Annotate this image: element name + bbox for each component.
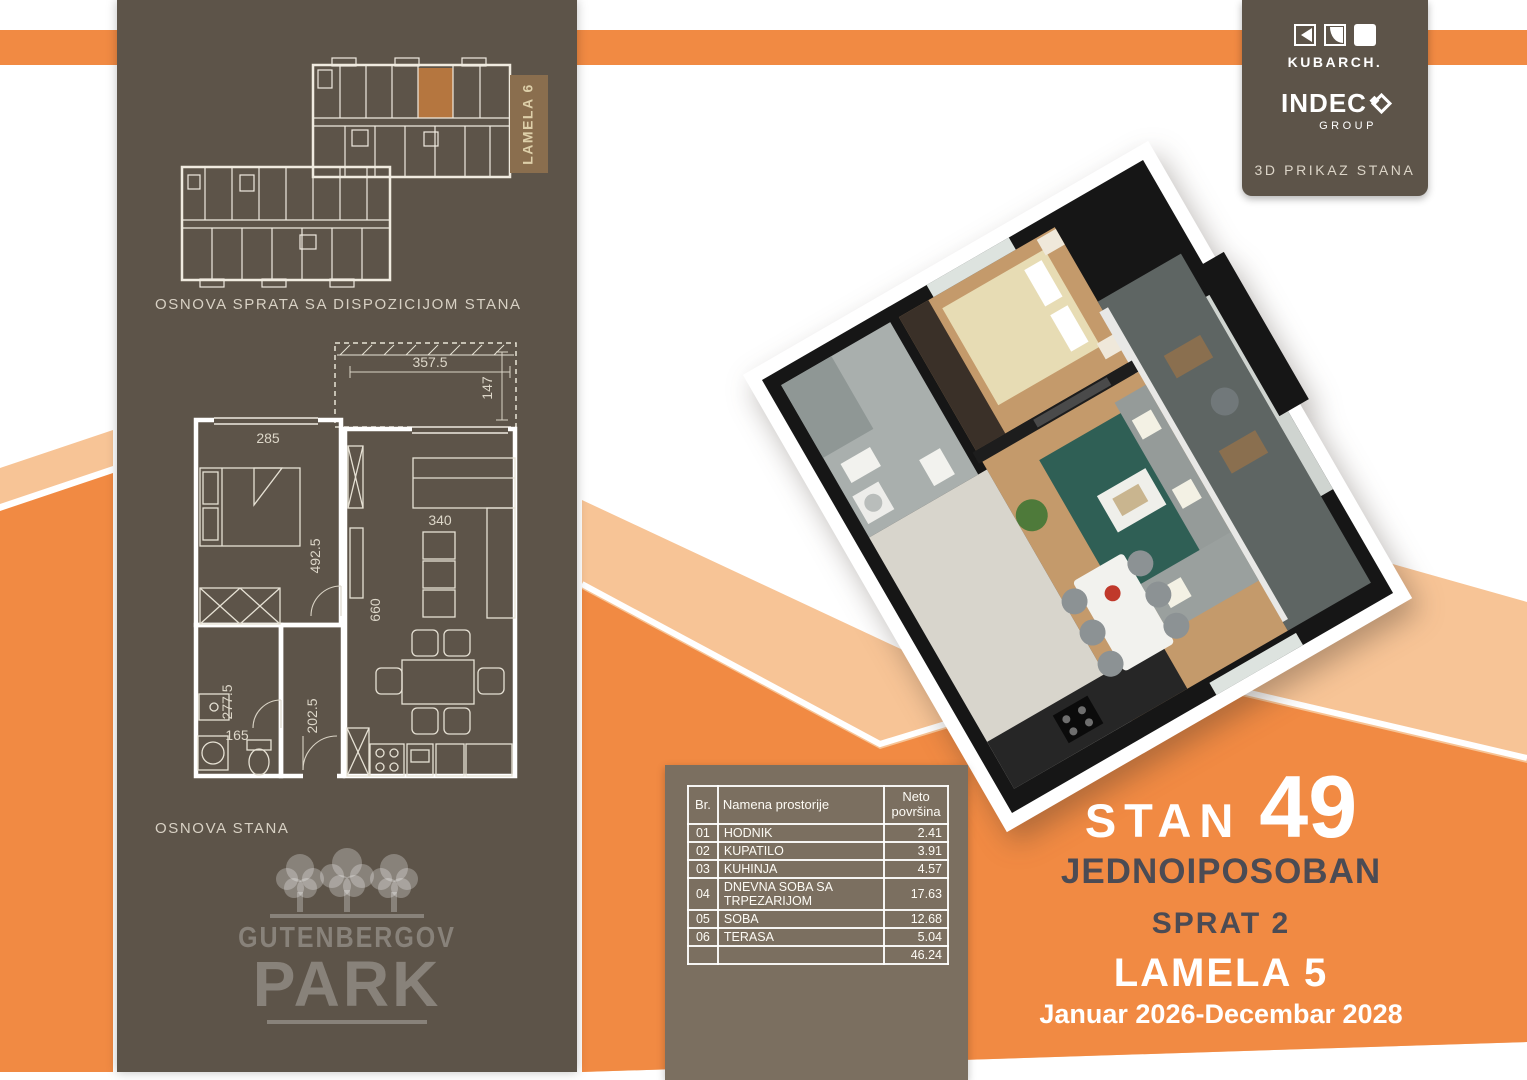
- dim-sofa-width: 340: [428, 512, 452, 528]
- dim-bedroom-width: 285: [256, 430, 280, 446]
- unit-floor-plan: 357.5 147 285 492.5 340 660 277.5 202.5 …: [137, 332, 562, 810]
- stan-label: STAN: [1085, 793, 1241, 848]
- kubarch-label: KUBARCH.: [1288, 54, 1383, 70]
- table-row: 06TERASA5.04: [688, 928, 948, 946]
- trees-icon: [262, 848, 432, 920]
- room-area: 17.63: [884, 878, 948, 910]
- room-number: 05: [688, 910, 718, 928]
- table-row: 01HODNIK2.41: [688, 824, 948, 842]
- kubarch-square-solid-icon: [1354, 24, 1376, 46]
- dim-bath-height: 277.5: [219, 684, 235, 719]
- apartment-type: JEDNOIPOSOBAN: [1005, 852, 1437, 892]
- highlighted-unit: [418, 68, 453, 118]
- table-row: 04DNEVNA SOBA SA TRPEZARIJOM17.63: [688, 878, 948, 910]
- table-total-row: 46.24: [688, 946, 948, 964]
- col-header-br: Br.: [688, 786, 718, 824]
- room-name: KUPATILO: [718, 842, 884, 860]
- room-number: 03: [688, 860, 718, 878]
- dim-bedroom-height: 492.5: [307, 538, 323, 573]
- apartment-floor: SPRAT 2: [1005, 907, 1437, 941]
- logo-underline: [267, 1020, 427, 1024]
- floor-site-plan: LAMELA 6: [145, 50, 567, 290]
- table-row: 03KUHINJA4.57: [688, 860, 948, 878]
- room-number: 02: [688, 842, 718, 860]
- site-plan-title: OSNOVA SPRATA SA DISPOZICIJOM STANA: [155, 296, 522, 313]
- room-area: 3.91: [884, 842, 948, 860]
- kubarch-logo-icon: [1294, 24, 1376, 46]
- room-name: TERASA: [718, 928, 884, 946]
- dim-bath-width: 165: [225, 727, 249, 743]
- room-area: 12.68: [884, 910, 948, 928]
- col-header-area-line2: površina: [889, 805, 943, 820]
- kubarch-square-quarter-icon: [1324, 24, 1346, 46]
- brochure-page: LAMELA 6 OSNOVA SPRATA SA DISPOZICIJOM S…: [0, 0, 1527, 1080]
- dim-terrace-width: 357.5: [412, 354, 447, 370]
- room-number: 04: [688, 878, 718, 910]
- logo-word-park: PARK: [253, 955, 442, 1014]
- room-number: 06: [688, 928, 718, 946]
- dim-hall-height: 202.5: [304, 698, 320, 733]
- room-table-panel: Br. Namena prostorije Neto površina 01HO…: [665, 765, 968, 1080]
- room-area: 5.04: [884, 928, 948, 946]
- indeco-group-label: GROUP: [1319, 120, 1377, 132]
- total-area: 46.24: [884, 946, 948, 964]
- total-empty-br: [688, 946, 718, 964]
- room-area: 2.41: [884, 824, 948, 842]
- col-header-name: Namena prostorije: [718, 786, 884, 824]
- table-row: 02KUPATILO3.91: [688, 842, 948, 860]
- room-area: 4.57: [884, 860, 948, 878]
- table-row: 05SOBA12.68: [688, 910, 948, 928]
- left-orange-band: [0, 473, 113, 1072]
- col-header-area-line1: Neto: [889, 790, 943, 805]
- lamela-tag-label: LAMELA 6: [520, 83, 536, 164]
- col-header-area: Neto površina: [884, 786, 948, 824]
- render-caption: 3D PRIKAZ STANA: [1255, 162, 1416, 178]
- left-panel: LAMELA 6 OSNOVA SPRATA SA DISPOZICIJOM S…: [117, 0, 577, 1072]
- indeco-label: INDEC: [1281, 88, 1367, 119]
- apartment-lamela: LAMELA 5: [1005, 951, 1437, 996]
- room-name: DNEVNA SOBA SA TRPEZARIJOM: [718, 878, 884, 910]
- room-name: SOBA: [718, 910, 884, 928]
- dim-living-height: 660: [367, 598, 383, 622]
- stan-number: 49: [1259, 770, 1357, 845]
- total-empty-name: [718, 946, 884, 964]
- indeco-diamond-icon: [1371, 93, 1392, 114]
- construction-period: Januar 2026-Decembar 2028: [1005, 999, 1437, 1030]
- room-name: KUHINJA: [718, 860, 884, 878]
- room-number: 01: [688, 824, 718, 842]
- logo-word-gutenbergov: GUTENBERGOV: [238, 922, 456, 955]
- room-name: HODNIK: [718, 824, 884, 842]
- unit-plan-title: OSNOVA STANA: [155, 820, 290, 837]
- indeco-logo: INDEC: [1281, 88, 1389, 119]
- gutenbergov-park-logo: GUTENBERGOV PARK: [117, 848, 577, 1024]
- brand-panel: KUBARCH. INDEC GROUP 3D PRIKAZ STANA: [1242, 0, 1428, 196]
- dim-terrace-height: 147: [479, 376, 495, 400]
- kubarch-square-triangle-icon: [1294, 24, 1316, 46]
- apartment-info: STAN 49 JEDNOIPOSOBAN SPRAT 2 LAMELA 5 J…: [1005, 770, 1437, 1030]
- table-header-row: Br. Namena prostorije Neto površina: [688, 786, 948, 824]
- room-table: Br. Namena prostorije Neto površina 01HO…: [687, 785, 949, 965]
- stan-line: STAN 49: [1005, 770, 1437, 848]
